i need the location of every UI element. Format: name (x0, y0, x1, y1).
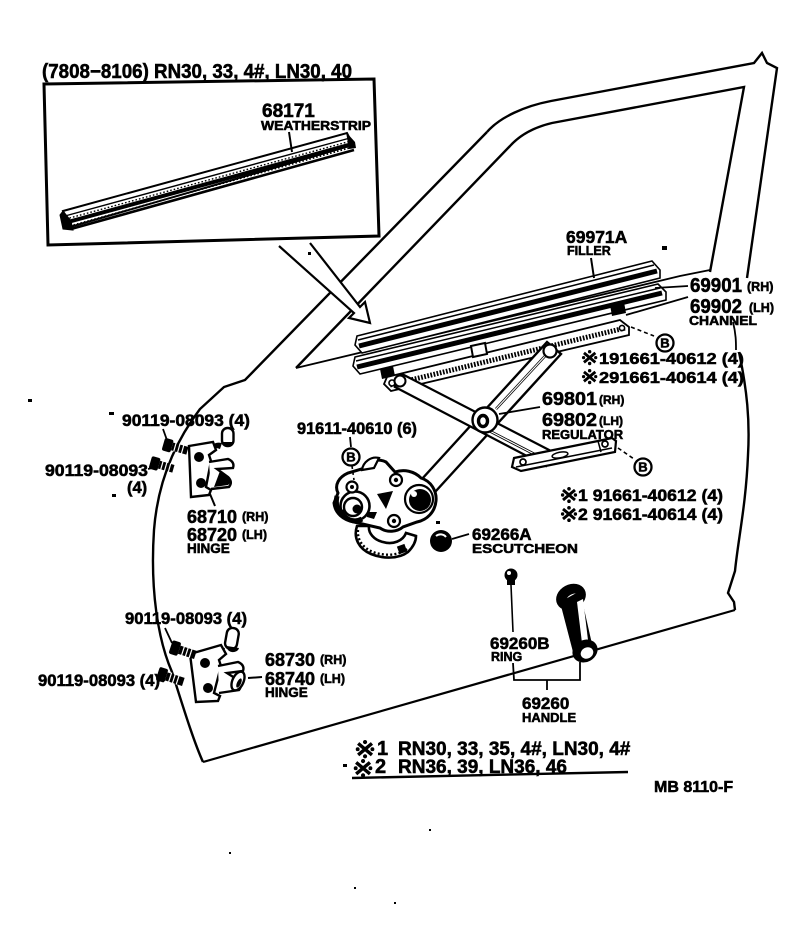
svg-text:(RH): (RH) (320, 653, 346, 667)
svg-text:90119-08093 (4): 90119-08093 (4) (122, 412, 250, 430)
svg-text:69901: 69901 (690, 275, 742, 297)
svg-text:90119-08093 (4): 90119-08093 (4) (125, 610, 247, 628)
svg-text:(LH): (LH) (749, 301, 774, 315)
svg-text:2 91661-40614 (4): 2 91661-40614 (4) (578, 506, 723, 524)
svg-text:HINGE: HINGE (187, 541, 230, 556)
svg-text:RING: RING (491, 650, 522, 664)
svg-text:90119-08093 (4): 90119-08093 (4) (38, 672, 160, 690)
svg-text:HINGE: HINGE (265, 685, 308, 700)
svg-text:68710: 68710 (187, 507, 237, 527)
svg-text:(LH): (LH) (320, 672, 345, 686)
svg-text:B: B (660, 336, 669, 351)
svg-text:1 91661-40612 (4): 1 91661-40612 (4) (578, 487, 723, 505)
svg-text:(7808−8106) RN30, 33, 4#, LN30: (7808−8106) RN30, 33, 4#, LN30, 40 (42, 61, 352, 83)
svg-text:CHANNEL: CHANNEL (689, 314, 757, 328)
svg-text:(RH): (RH) (599, 393, 624, 407)
svg-text:90119-08093: 90119-08093 (45, 462, 148, 480)
svg-text:2: 2 (375, 756, 386, 778)
svg-text:(RH): (RH) (747, 280, 773, 294)
svg-text:FILLER: FILLER (567, 244, 611, 258)
svg-text:HANDLE: HANDLE (522, 710, 576, 725)
svg-text:(LH): (LH) (242, 528, 267, 542)
svg-text:69801: 69801 (542, 389, 597, 409)
svg-text:(LH): (LH) (599, 414, 623, 428)
svg-text:WEATHERSTRIP: WEATHERSTRIP (261, 119, 371, 133)
svg-text:291661-40614 (4): 291661-40614 (4) (599, 370, 744, 387)
svg-text:B: B (346, 450, 355, 465)
svg-text:ESCUTCHEON: ESCUTCHEON (472, 541, 578, 556)
svg-text:91611-40610 (6): 91611-40610 (6) (297, 420, 417, 438)
svg-text:68730: 68730 (265, 650, 315, 670)
svg-text:B: B (638, 460, 647, 475)
svg-text:(RH): (RH) (242, 510, 268, 524)
svg-text:MB 8110-F: MB 8110-F (654, 779, 733, 796)
svg-text:191661-40612 (4): 191661-40612 (4) (599, 351, 744, 368)
svg-text:(4): (4) (127, 479, 147, 497)
